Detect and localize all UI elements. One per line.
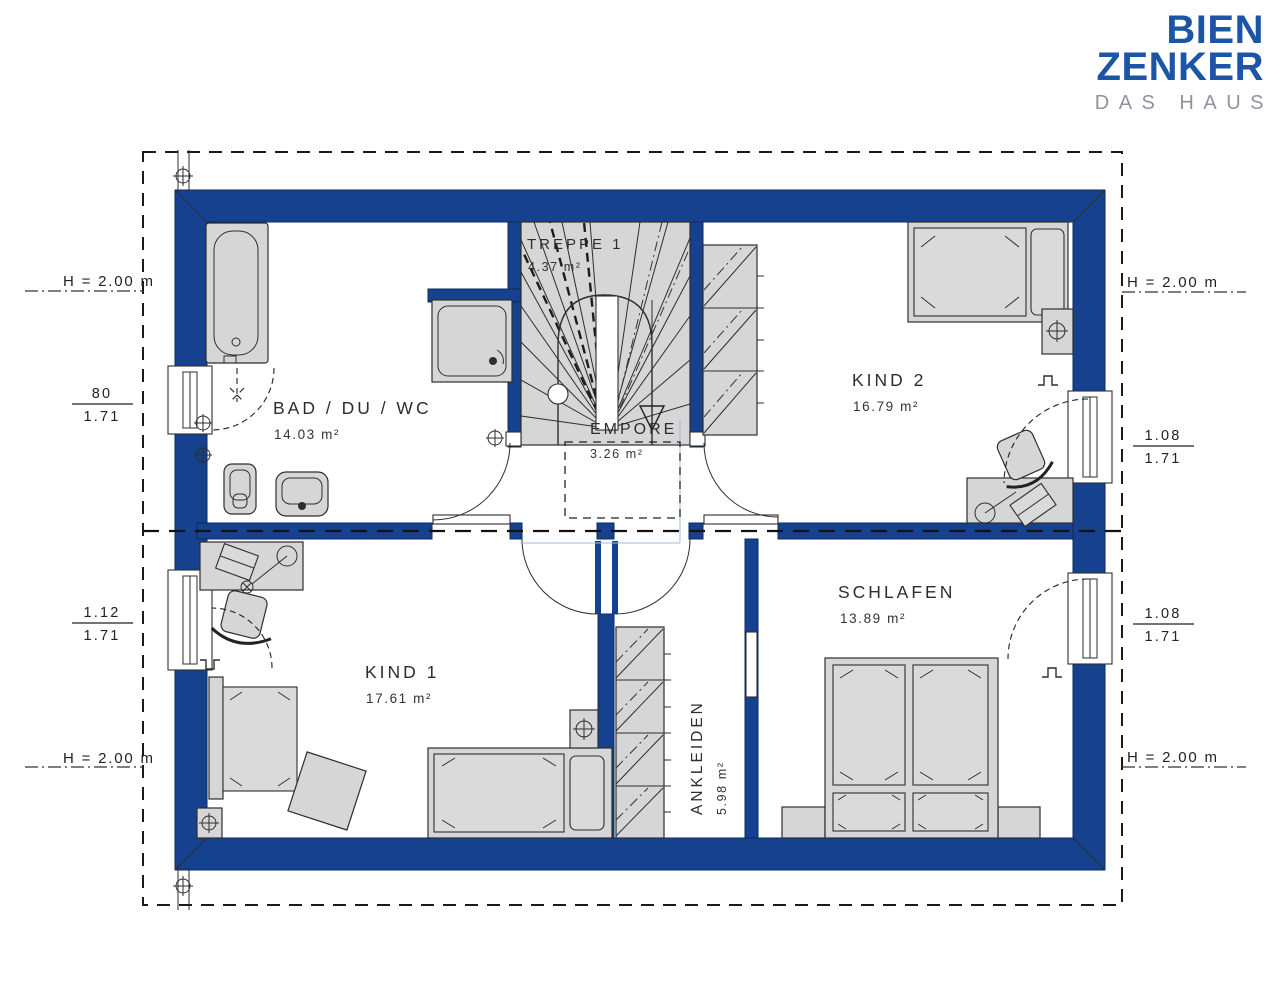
room-label-kind1: KIND 1 (365, 662, 439, 682)
kind2-step-symbol (1038, 376, 1058, 385)
dim-right-window-top: 1.08 1.71 (1133, 428, 1194, 467)
vent-marker-top (173, 150, 193, 192)
room-label-treppe: TREPPE 1 (527, 236, 624, 253)
double-bed (825, 658, 998, 838)
room-area-kind1: 17.61 m² (366, 691, 432, 706)
dim-fraction-numerator: 80 (92, 386, 113, 402)
room-label-kind2: KIND 2 (852, 370, 926, 390)
dim-left-window-bottom: 1.12 1.71 (72, 605, 133, 644)
stair-spine (596, 296, 618, 430)
staircase (506, 222, 705, 446)
washbasin (276, 472, 328, 516)
stair-door-lining-left (506, 432, 521, 446)
dim-fraction-numerator: 1.12 (83, 605, 120, 621)
window-right-top (1068, 391, 1112, 483)
toilet (224, 464, 256, 514)
shelf-kind2 (703, 245, 764, 435)
wardrobe-column (616, 627, 671, 838)
bath-window-marks (230, 368, 244, 402)
kind2-side-unit (1042, 309, 1073, 354)
room-area-empore: 3.26 m² (590, 447, 644, 461)
room-label-bad: BAD / DU / WC (273, 398, 432, 418)
kind2-door-swing (704, 443, 778, 517)
bath-window-swing (212, 368, 274, 430)
shower (432, 300, 512, 382)
bed-kind2 (908, 222, 1068, 322)
stair-east-wall (690, 222, 703, 447)
room-label-ankleiden: ANKLEIDEN (689, 700, 706, 815)
dim-right-window-bottom: 1.08 1.71 (1133, 606, 1194, 645)
dim-right-height-bottom: H = 2.00 m (1127, 749, 1219, 766)
bathroom-fixtures (206, 223, 512, 516)
hall-door-leaf (612, 541, 618, 614)
dim-fraction-denominator: 1.71 (1144, 451, 1181, 467)
vent-marker-bottom (173, 868, 193, 910)
room-label-empore: EMPORE (590, 421, 677, 438)
room-area-ankleiden: 5.98 m² (715, 761, 729, 815)
dim-left-height-top: H = 2.00 m (63, 273, 155, 290)
stair-newel-circle (548, 384, 568, 404)
window-right-bottom (1068, 573, 1112, 664)
hall-door-swing (615, 539, 690, 614)
room-area-bad: 14.03 m² (274, 427, 340, 442)
dim-fraction-denominator: 1.71 (83, 409, 120, 425)
rug-kind1 (288, 752, 366, 830)
dim-left-height-bottom: H = 2.00 m (63, 750, 155, 767)
dim-fraction-numerator: 1.08 (1144, 606, 1181, 622)
dim-fraction-numerator: 1.08 (1144, 428, 1181, 444)
kind1-corner-unit (197, 808, 222, 838)
kind1-door-leaf (595, 541, 601, 614)
chair-kind1 (210, 587, 280, 650)
nightstand-right (998, 807, 1040, 838)
bath-door-swing (433, 443, 510, 520)
bathtub (206, 223, 268, 363)
room-area-kind2: 16.79 m² (853, 399, 919, 414)
schlafen-furniture (782, 579, 1088, 838)
bed-kind1-vertical (209, 677, 297, 799)
room-label-schlafen: SCHLAFEN (838, 582, 955, 602)
floorplan-page: BIEN ZENKER DAS HAUS (0, 0, 1280, 990)
window-left-top (168, 366, 212, 434)
nightstand-left (782, 807, 825, 838)
dim-left-window-top: 80 1.71 (72, 386, 133, 425)
dim-right-height-top: H = 2.00 m (1127, 274, 1219, 291)
schlafen-step-symbol (1042, 668, 1062, 677)
dim-fraction-denominator: 1.71 (1144, 629, 1181, 645)
dim-fraction-denominator: 1.71 (83, 628, 120, 644)
room-area-schlafen: 13.89 m² (840, 611, 906, 626)
kind1-door-swing (522, 539, 597, 614)
desk-kind1 (200, 542, 303, 593)
bed-kind1-horizontal (428, 748, 612, 838)
floor-plan: BAD / DU / WC 14.03 m² TREPPE 1 4.37 m² … (0, 0, 1280, 990)
schlafen-door-leaf (746, 632, 757, 697)
room-area-treppe: 4.37 m² (528, 260, 582, 274)
hall-side-unit (570, 710, 598, 748)
kind1-furniture (197, 542, 612, 838)
empore-marker (486, 429, 504, 447)
